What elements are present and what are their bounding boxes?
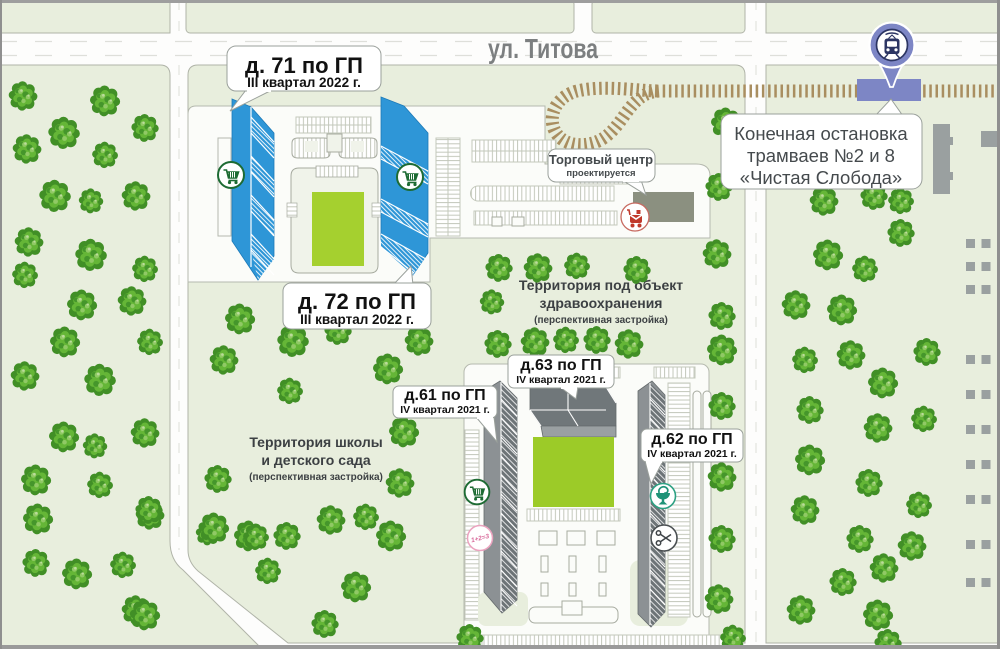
svg-text:трамваев №2 и 8: трамваев №2 и 8	[747, 145, 895, 166]
svg-text:Торговый центр: Торговый центр	[549, 152, 653, 167]
svg-text:Территория школы: Территория школы	[249, 434, 382, 450]
svg-text:IV квартал 2021 г.: IV квартал 2021 г.	[516, 374, 606, 386]
svg-text:д. 72 по ГП: д. 72 по ГП	[298, 289, 416, 314]
svg-text:проектируется: проектируется	[566, 168, 635, 179]
svg-text:III квартал 2022 г.: III квартал 2022 г.	[300, 312, 414, 327]
svg-text:IV квартал 2021 г.: IV квартал 2021 г.	[647, 448, 737, 460]
svg-text:«Чистая Слобода»: «Чистая Слобода»	[740, 167, 902, 188]
svg-text:Конечная остановка: Конечная остановка	[734, 123, 908, 144]
svg-text:ул. Титова: ул. Титова	[488, 33, 598, 64]
svg-text:здравоохранения: здравоохранения	[540, 295, 663, 311]
svg-text:д.61 по ГП: д.61 по ГП	[404, 387, 485, 404]
svg-text:IV квартал 2021 г.: IV квартал 2021 г.	[400, 404, 490, 416]
svg-text:III квартал 2022 г.: III квартал 2022 г.	[247, 75, 361, 90]
svg-text:д.62 по ГП: д.62 по ГП	[651, 431, 732, 448]
svg-text:(перспективная застройка): (перспективная застройка)	[249, 472, 383, 483]
svg-text:и детского сада: и детского сада	[261, 452, 371, 468]
svg-text:(перспективная застройка): (перспективная застройка)	[534, 315, 668, 326]
svg-text:д.63 по ГП: д.63 по ГП	[520, 357, 601, 374]
